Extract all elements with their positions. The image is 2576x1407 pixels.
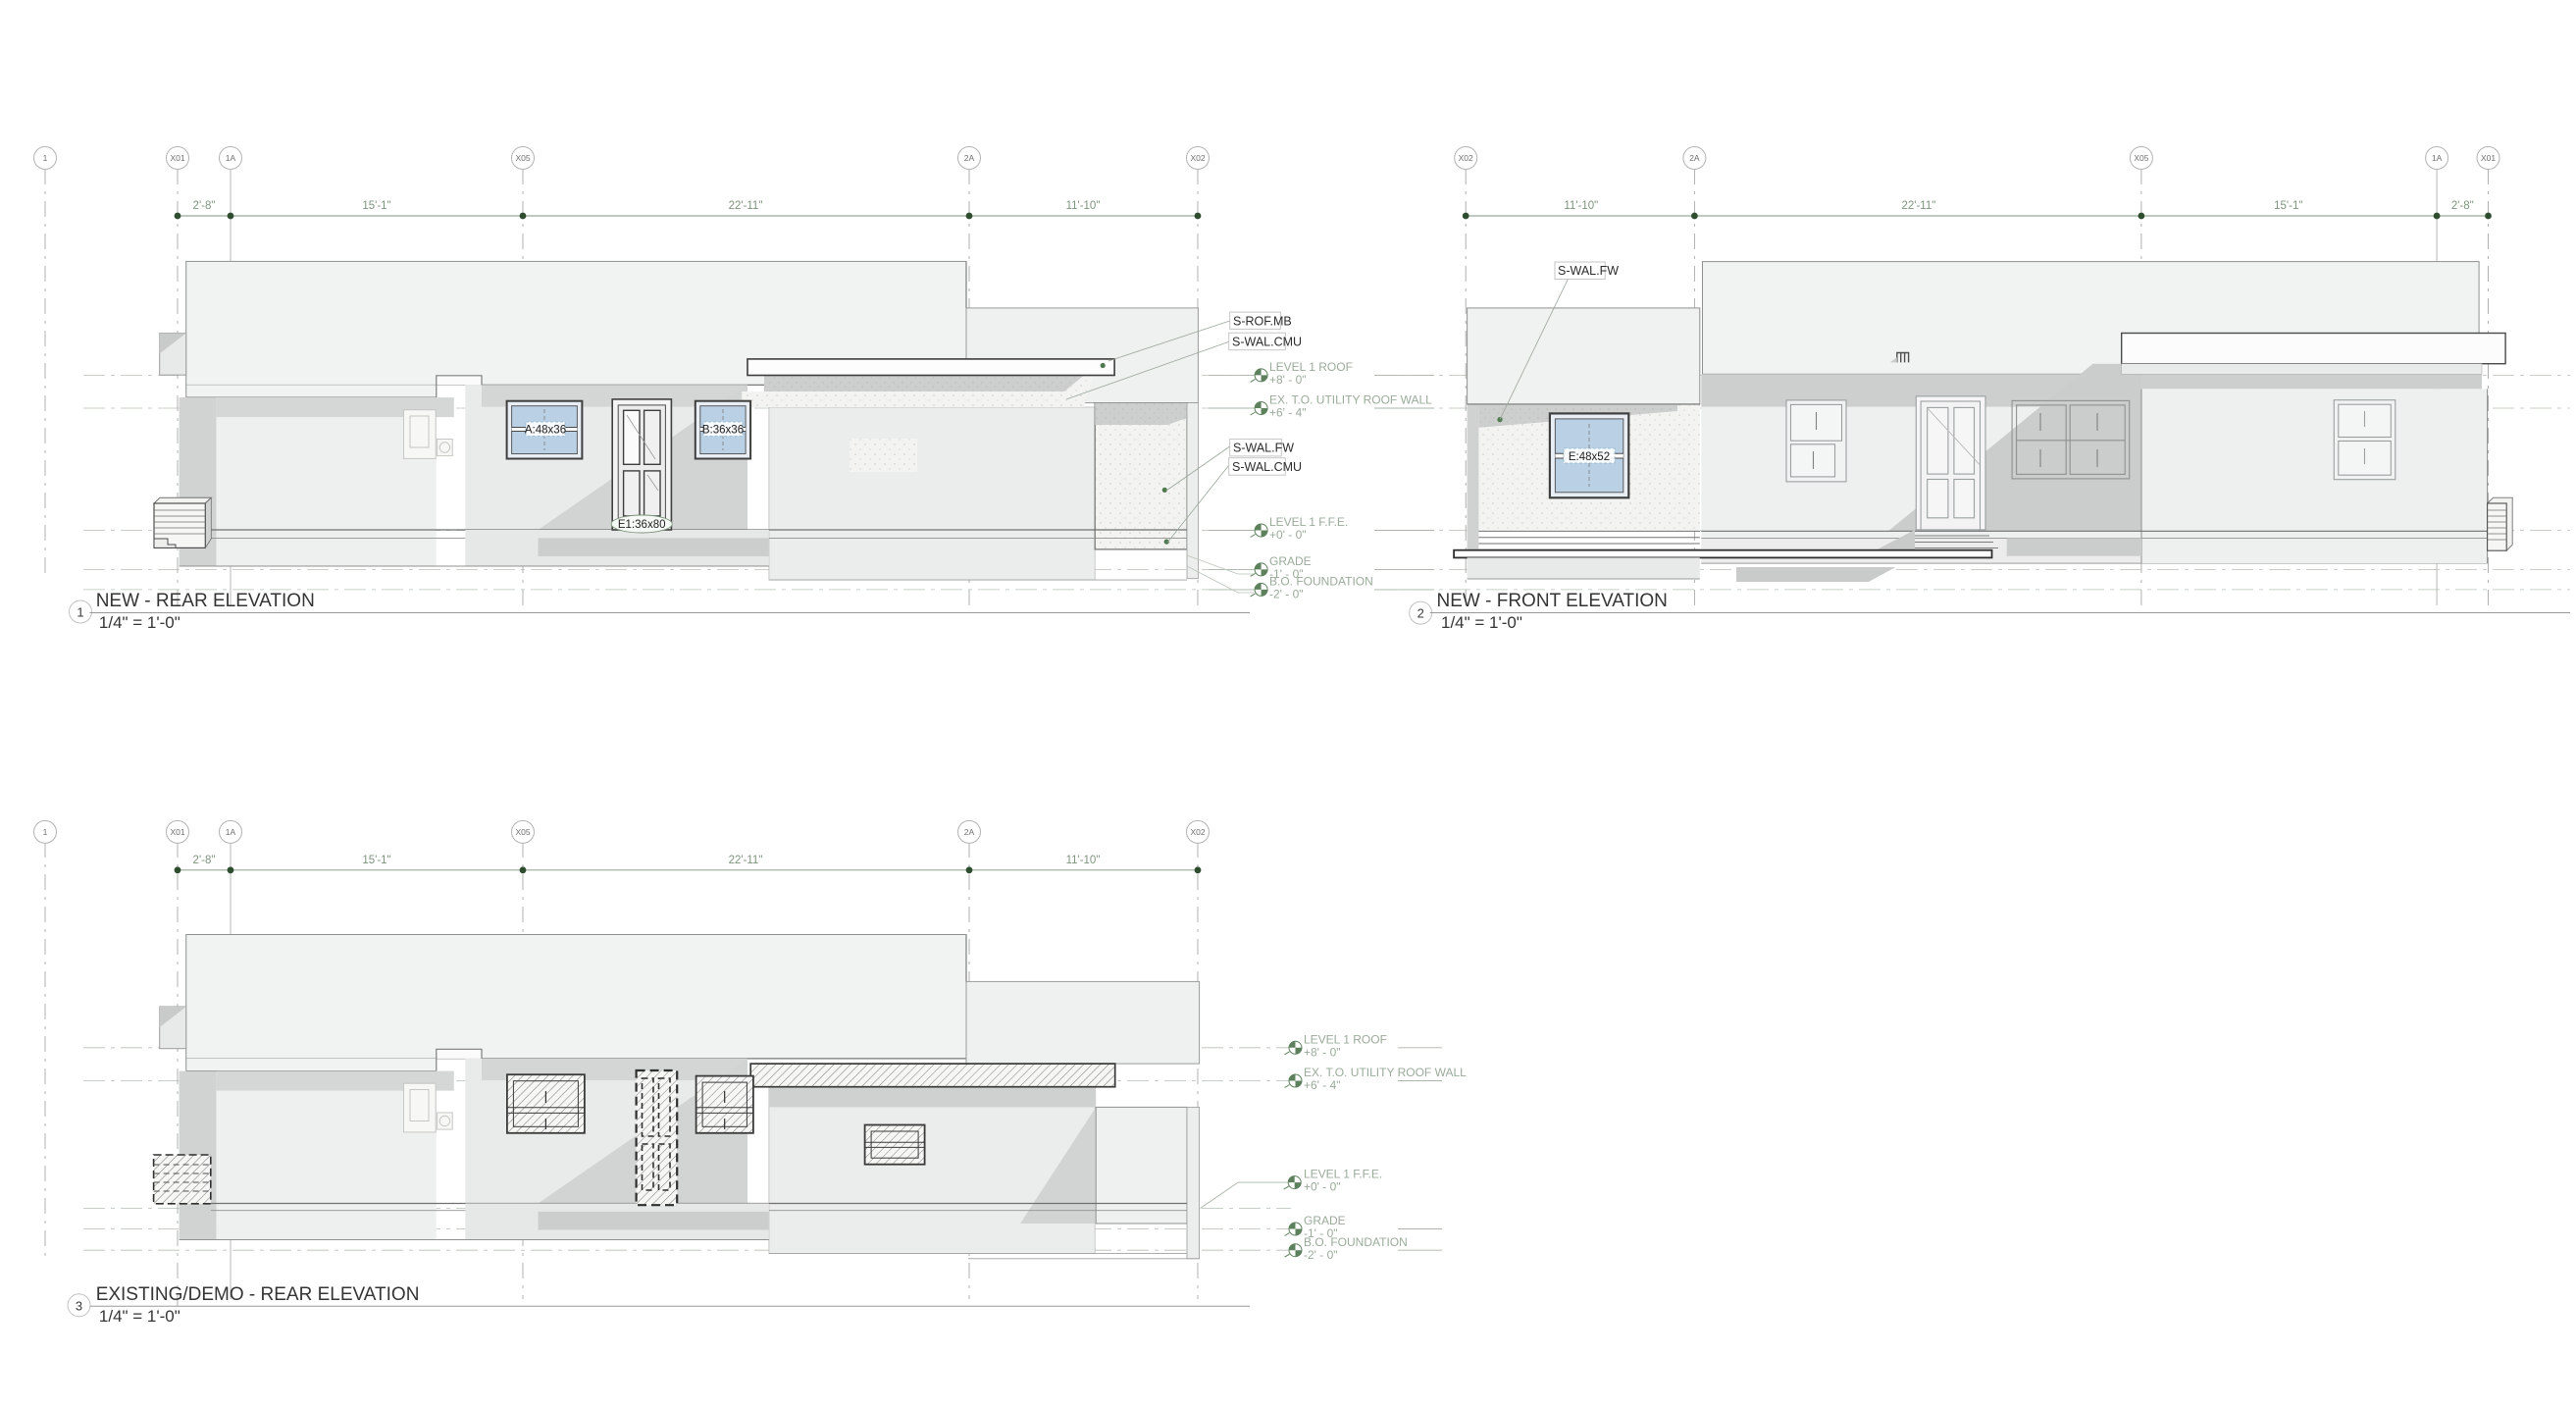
svg-text:+8' - 0": +8' - 0" (1304, 1045, 1341, 1059)
svg-text:A:48x36: A:48x36 (525, 425, 566, 437)
svg-text:NEW - FRONT ELEVATION: NEW - FRONT ELEVATION (1437, 591, 1668, 611)
svg-text:GRADE: GRADE (1304, 1214, 1346, 1227)
svg-text:X01: X01 (2481, 153, 2496, 163)
svg-text:-2' - 0": -2' - 0" (1269, 588, 1304, 601)
svg-text:-2' - 0": -2' - 0" (1304, 1248, 1338, 1262)
svg-text:15'-1": 15'-1" (362, 200, 390, 212)
svg-text:22'-11": 22'-11" (729, 855, 763, 866)
svg-text:X05: X05 (2134, 153, 2148, 163)
svg-text:+8' - 0": +8' - 0" (1269, 373, 1307, 387)
svg-text:1: 1 (43, 153, 48, 163)
svg-text:LEVEL 1 F.F.E.: LEVEL 1 F.F.E. (1269, 515, 1348, 529)
svg-text:E1:36x80: E1:36x80 (618, 519, 666, 531)
svg-text:X05: X05 (515, 153, 530, 163)
svg-text:S-WAL.FW: S-WAL.FW (1558, 264, 1619, 278)
svg-text:1A: 1A (226, 827, 236, 837)
svg-text:+0' - 0": +0' - 0" (1269, 528, 1307, 542)
svg-text:1/4" = 1'-0": 1/4" = 1'-0" (1441, 613, 1522, 632)
svg-text:2A: 2A (964, 827, 975, 837)
svg-text:1: 1 (77, 605, 83, 620)
svg-text:X02: X02 (1190, 827, 1205, 837)
svg-text:+6' - 4": +6' - 4" (1269, 406, 1307, 420)
svg-text:E:48x52: E:48x52 (1569, 451, 1610, 463)
svg-text:EX. T.O. UTILITY ROOF WALL: EX. T.O. UTILITY ROOF WALL (1269, 393, 1432, 407)
svg-text:EX. T.O. UTILITY ROOF WALL: EX. T.O. UTILITY ROOF WALL (1304, 1066, 1467, 1079)
svg-text:2A: 2A (964, 153, 975, 163)
svg-text:X01: X01 (170, 827, 184, 837)
svg-text:S-WAL.FW: S-WAL.FW (1233, 442, 1294, 455)
svg-text:11'-10": 11'-10" (1564, 200, 1598, 212)
svg-text:S-WAL.CMU: S-WAL.CMU (1232, 460, 1302, 474)
svg-text:1/4" = 1'-0": 1/4" = 1'-0" (99, 1307, 180, 1326)
svg-text:11'-10": 11'-10" (1066, 855, 1101, 866)
svg-text:LEVEL 1 ROOF: LEVEL 1 ROOF (1304, 1032, 1387, 1046)
svg-text:X05: X05 (515, 827, 530, 837)
svg-text:1A: 1A (226, 153, 236, 163)
svg-text:X01: X01 (170, 153, 184, 163)
svg-text:2: 2 (1417, 606, 1424, 621)
svg-text:B.O. FOUNDATION: B.O. FOUNDATION (1269, 575, 1373, 589)
svg-text:1A: 1A (2432, 153, 2443, 163)
svg-text:B:36x36: B:36x36 (702, 425, 744, 437)
svg-text:3: 3 (76, 1298, 82, 1313)
svg-text:LEVEL 1 F.F.E.: LEVEL 1 F.F.E. (1304, 1168, 1382, 1181)
svg-text:1/4" = 1'-0": 1/4" = 1'-0" (99, 613, 180, 632)
svg-text:S-WAL.CMU: S-WAL.CMU (1232, 335, 1302, 348)
svg-text:LEVEL 1 ROOF: LEVEL 1 ROOF (1269, 360, 1353, 374)
svg-text:X02: X02 (1459, 153, 1473, 163)
svg-text:2A: 2A (1689, 153, 1700, 163)
svg-text:+0' - 0": +0' - 0" (1304, 1180, 1341, 1194)
svg-text:EXISTING/DEMO - REAR ELEVATION: EXISTING/DEMO - REAR ELEVATION (96, 1284, 420, 1305)
svg-text:B.O. FOUNDATION: B.O. FOUNDATION (1304, 1235, 1408, 1249)
svg-text:2'-8": 2'-8" (193, 855, 216, 866)
svg-text:15'-1": 15'-1" (2274, 200, 2302, 212)
svg-text:1: 1 (43, 827, 48, 837)
svg-text:22'-11": 22'-11" (1901, 200, 1935, 212)
svg-text:GRADE: GRADE (1269, 554, 1312, 568)
svg-text:2'-8": 2'-8" (2451, 200, 2474, 212)
svg-text:11'-10": 11'-10" (1066, 200, 1101, 212)
svg-text:X02: X02 (1190, 153, 1205, 163)
svg-text:2'-8": 2'-8" (193, 200, 216, 212)
svg-text:NEW - REAR ELEVATION: NEW - REAR ELEVATION (96, 591, 315, 611)
svg-text:+6' - 4": +6' - 4" (1304, 1078, 1341, 1092)
svg-text:S-ROF.MB: S-ROF.MB (1233, 314, 1292, 328)
svg-text:15'-1": 15'-1" (362, 855, 390, 866)
svg-text:22'-11": 22'-11" (729, 200, 763, 212)
